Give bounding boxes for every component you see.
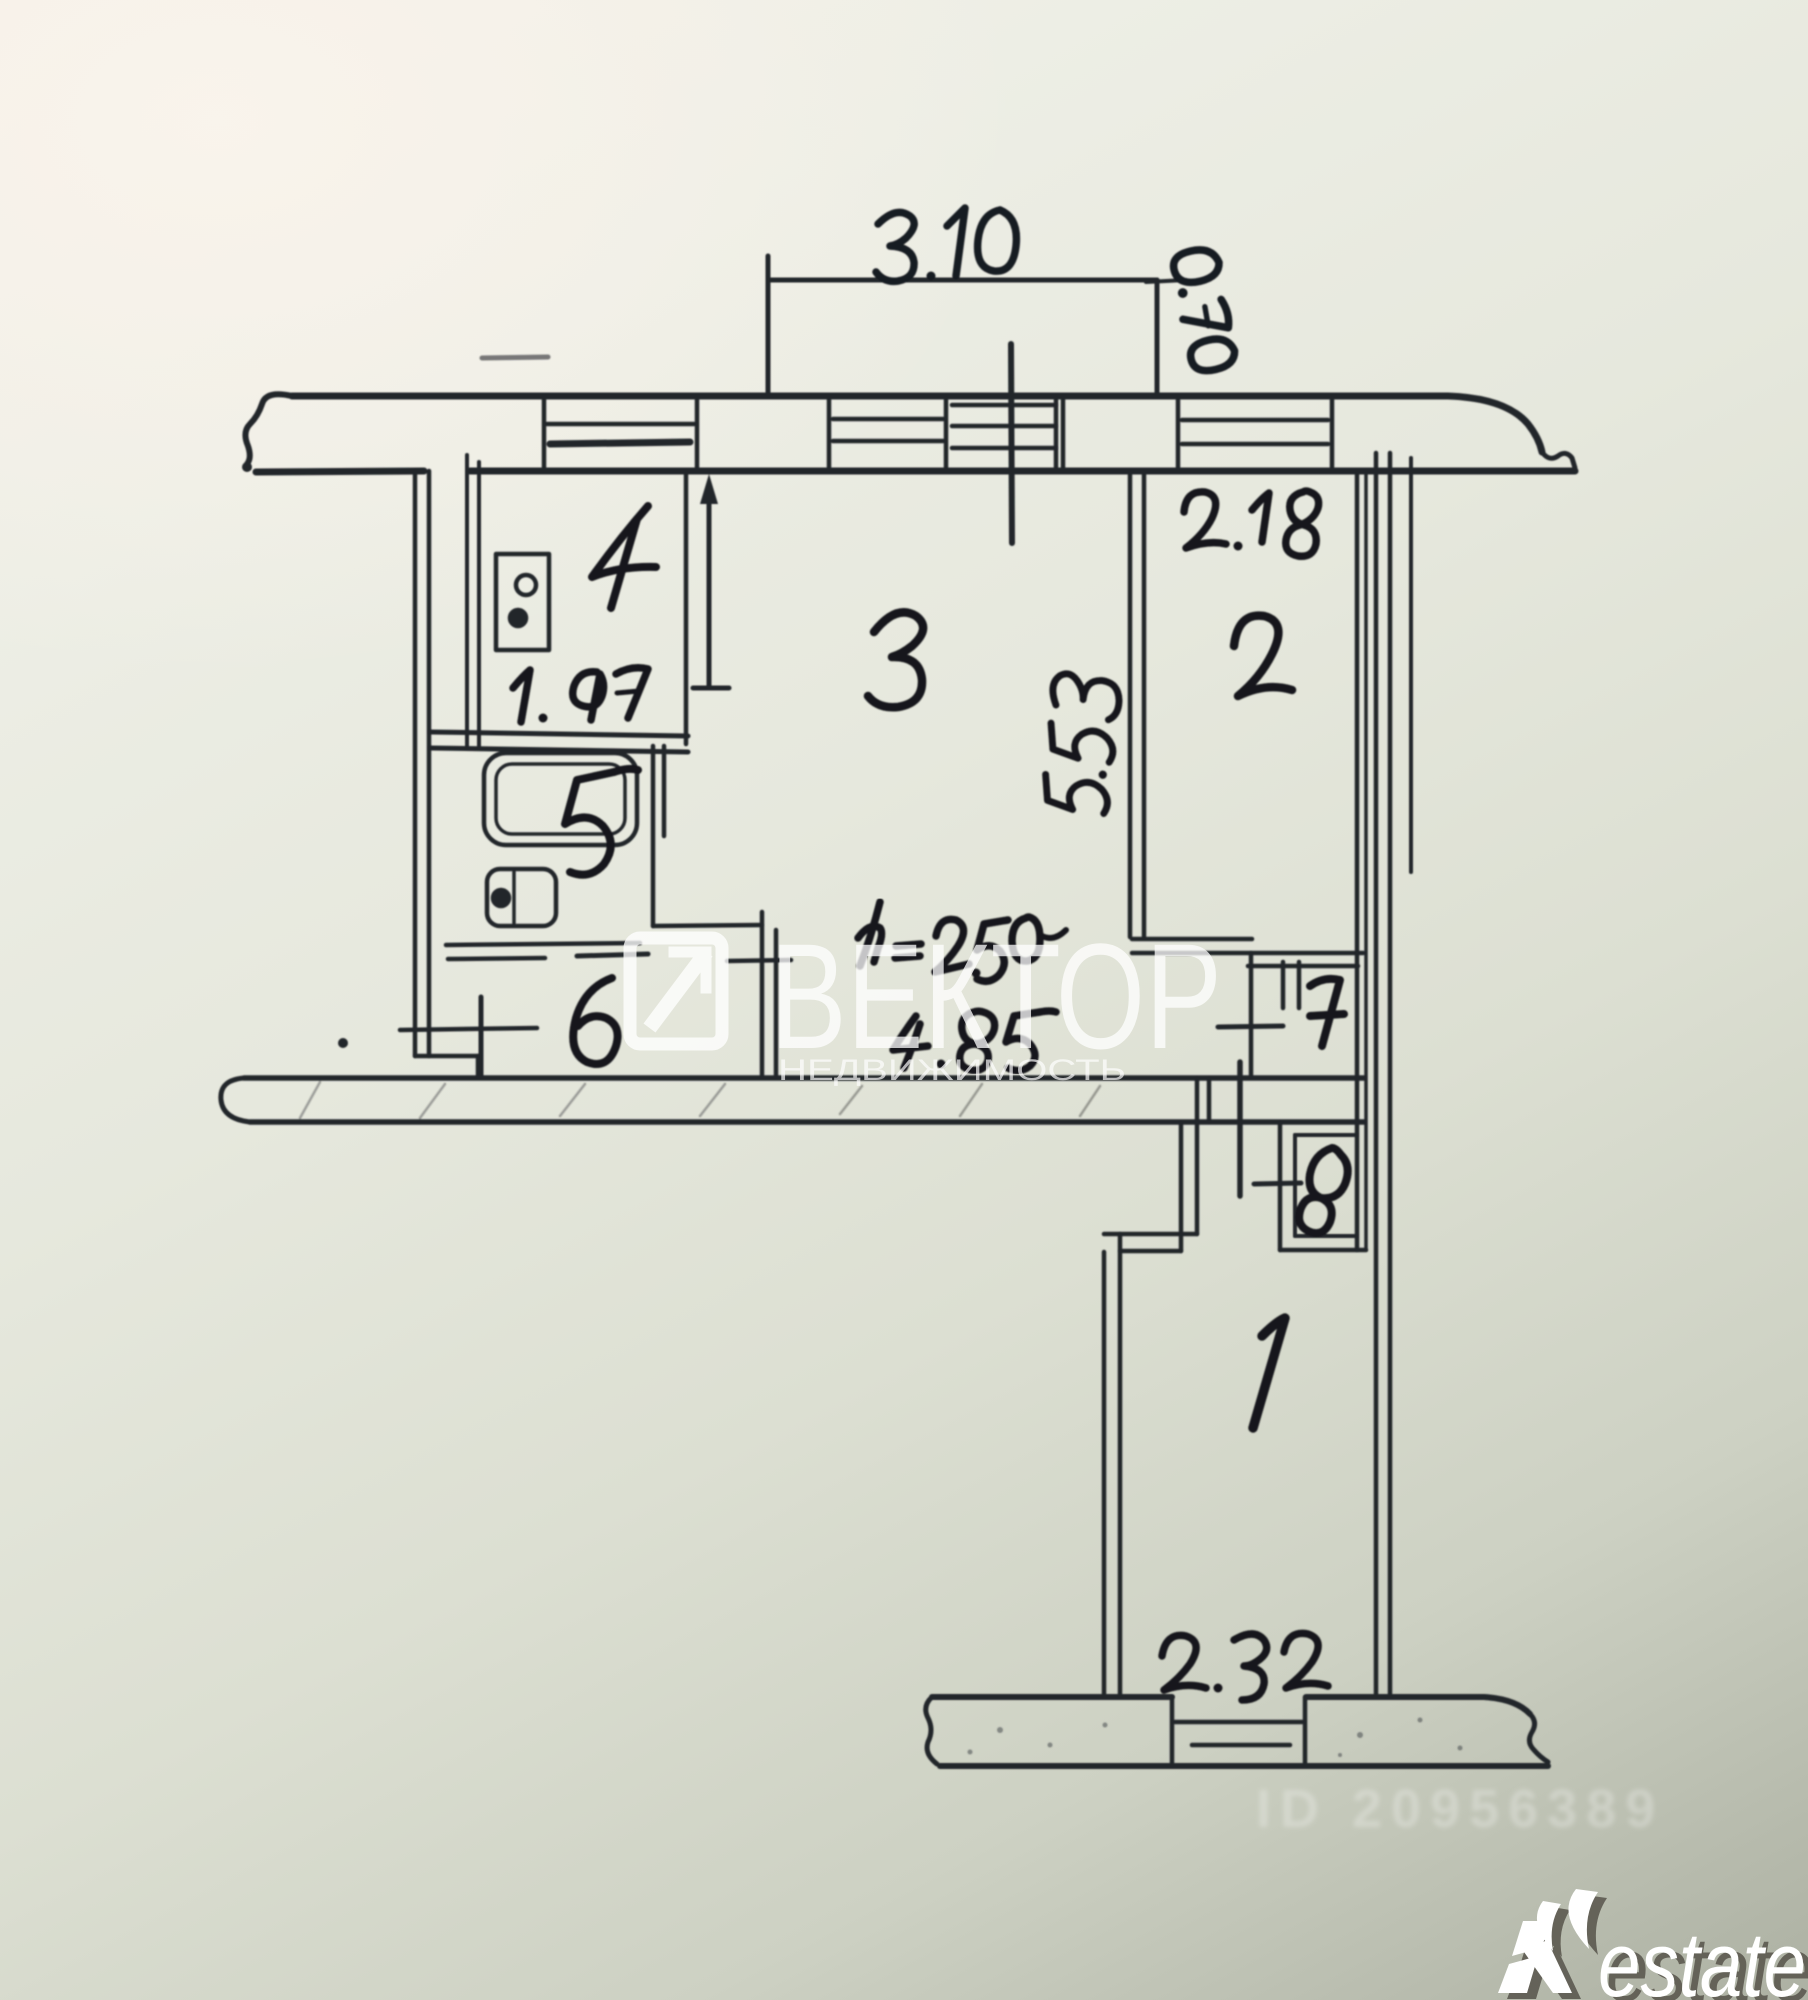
svg-text:estate: estate	[1598, 1914, 1806, 2000]
svg-text:ID 20956389: ID 20956389	[1256, 1779, 1664, 1839]
svg-text:НЕДВИЖИМОСТЬ: НЕДВИЖИМОСТЬ	[778, 1054, 1126, 1087]
